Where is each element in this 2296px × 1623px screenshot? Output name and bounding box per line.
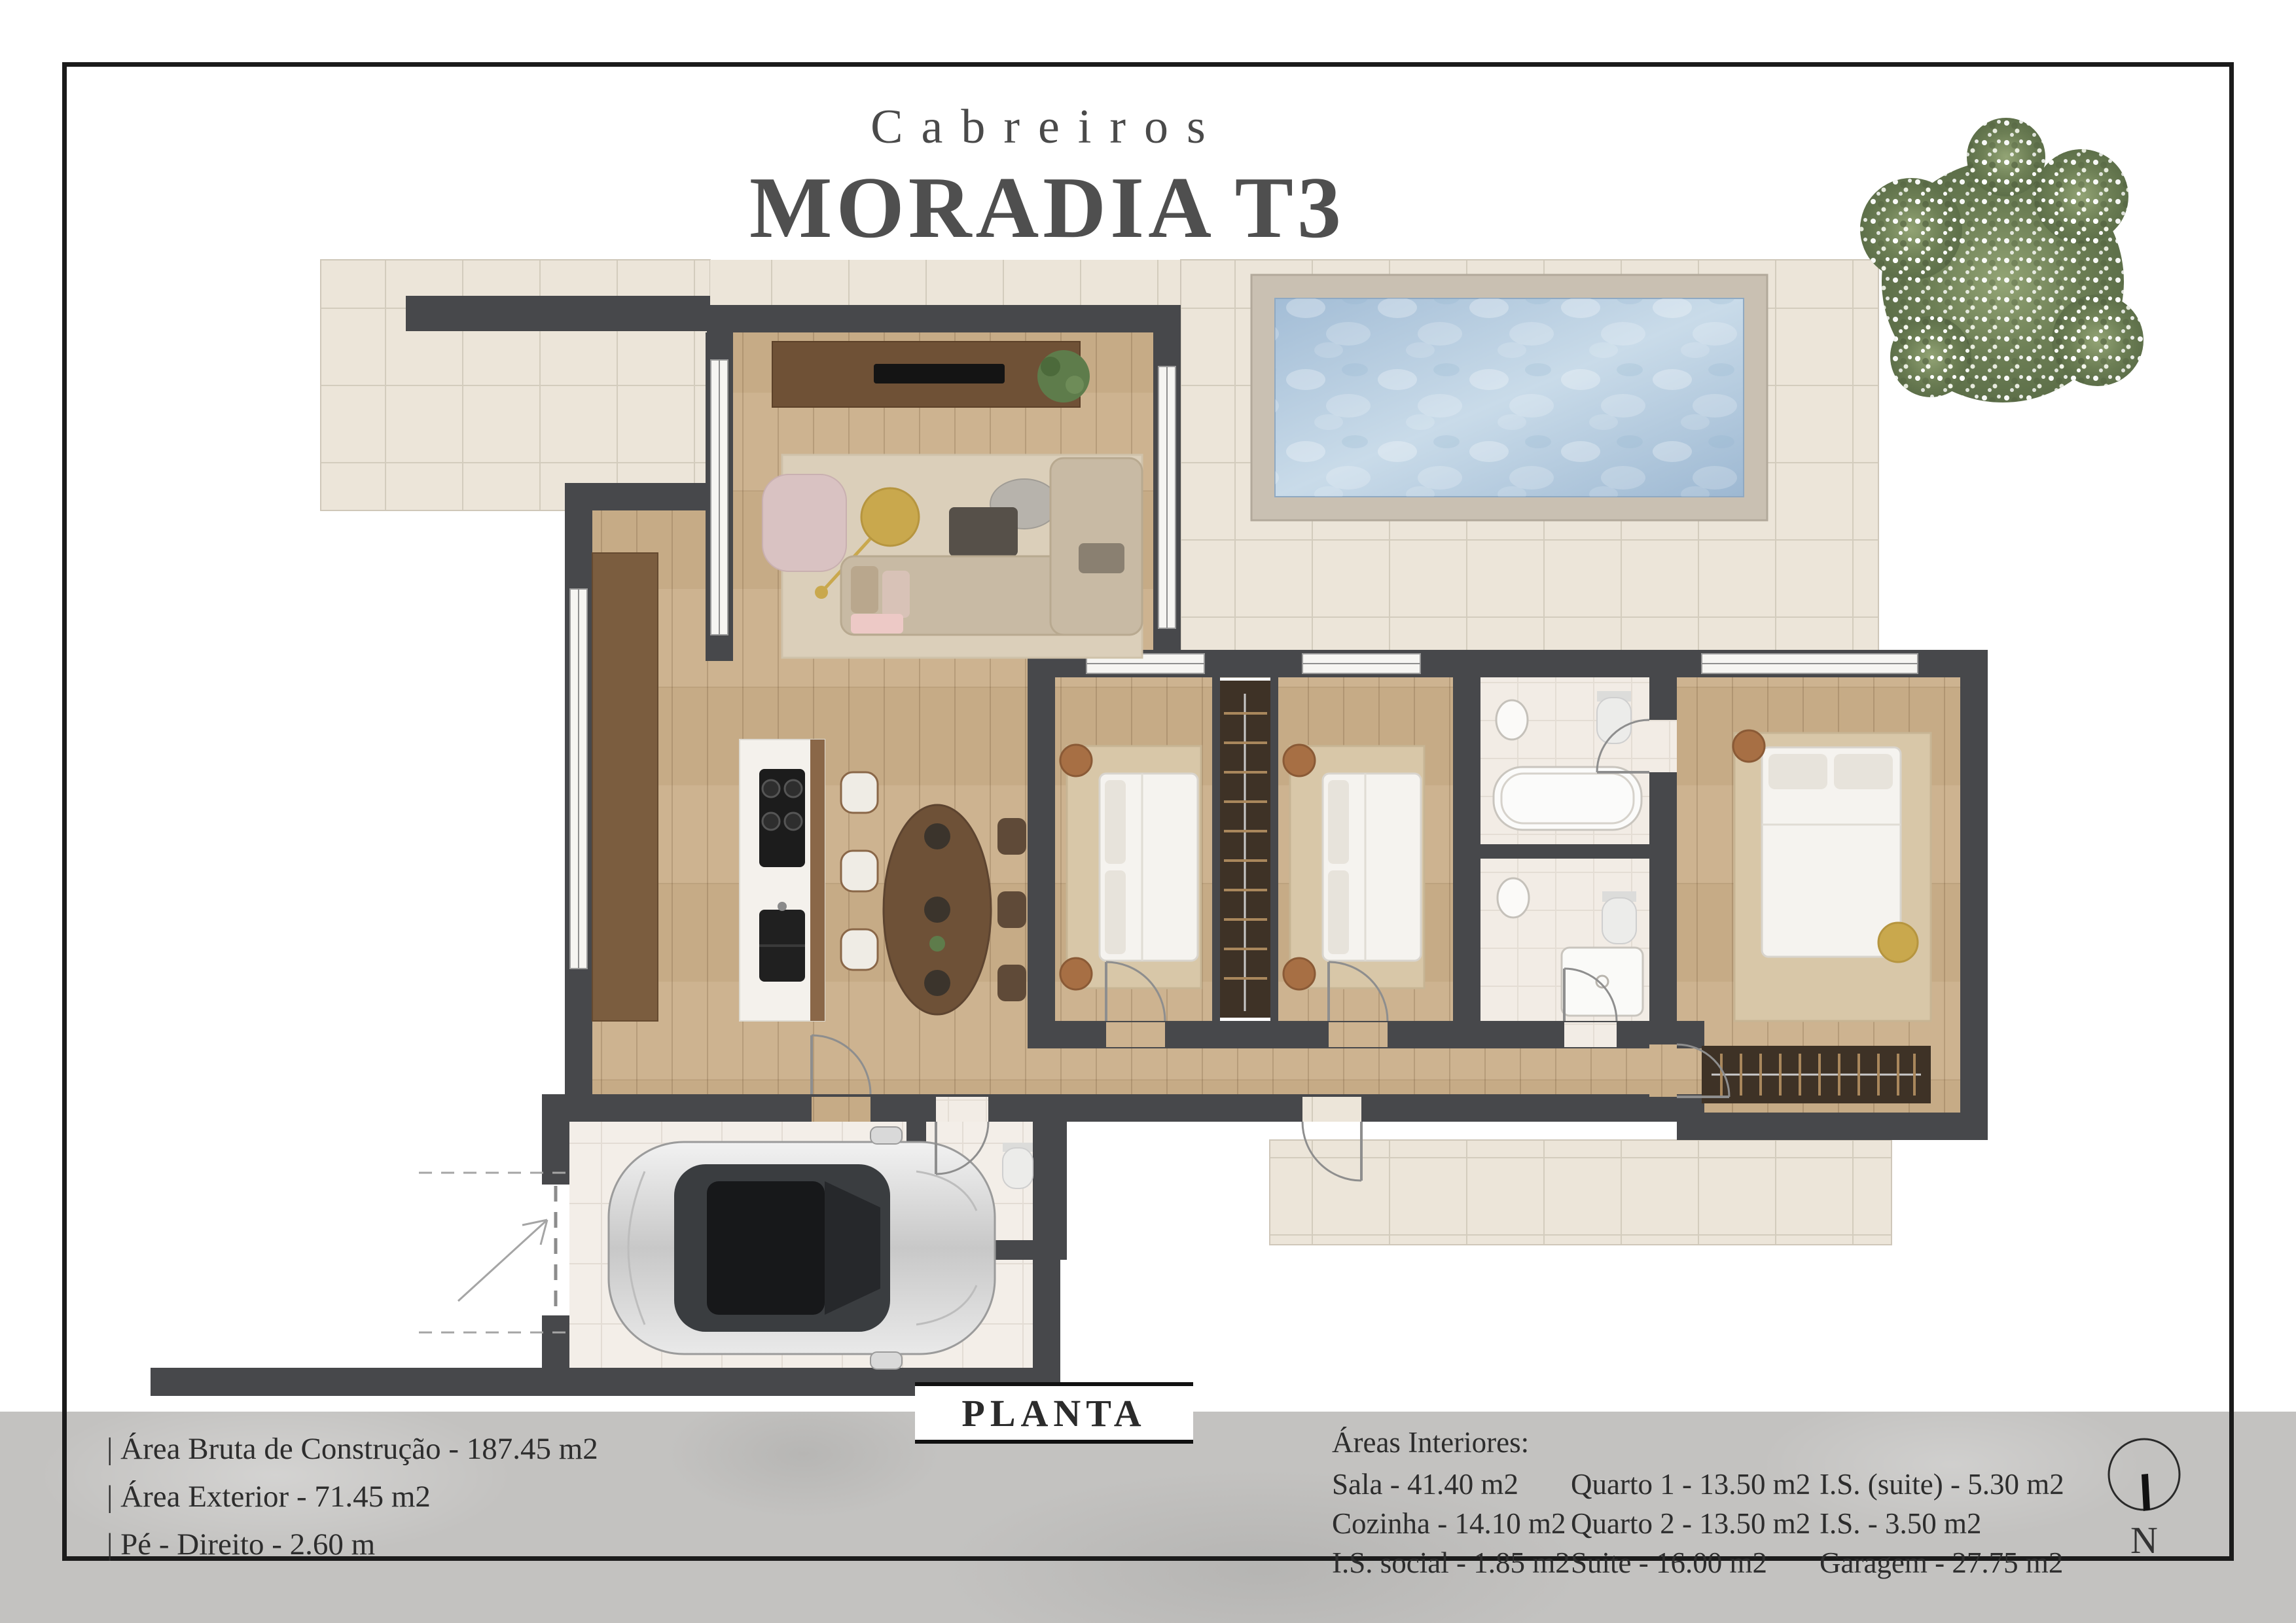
areas-column-2: Quarto 1 - 13.50 m2 Quarto 2 - 13.50 m2 … <box>1571 1465 1810 1582</box>
plan-label: PLANTA <box>915 1382 1193 1444</box>
compass-icon <box>2092 1431 2197 1519</box>
spec-line: | Área Exterior - 71.45 m2 <box>107 1473 598 1521</box>
project-name: Cabreiros <box>0 99 2094 155</box>
area-item: Quarto 1 - 13.50 m2 <box>1571 1465 1810 1504</box>
page-title: MORADIA T3 <box>0 157 2094 258</box>
area-item: Garagem - 27.75 m2 <box>1820 1543 2064 1582</box>
compass-north-label: N <box>2092 1518 2197 1562</box>
area-item: Cozinha - 14.10 m2 <box>1332 1504 1570 1543</box>
areas-column-3: I.S. (suite) - 5.30 m2 I.S. - 3.50 m2 Ga… <box>1820 1465 2064 1582</box>
areas-heading: Áreas Interiores: <box>1332 1425 1529 1459</box>
area-item: Suite - 16.00 m2 <box>1571 1543 1810 1582</box>
areas-column-1: Sala - 41.40 m2 Cozinha - 14.10 m2 I.S. … <box>1332 1465 1570 1582</box>
spec-line: | Pé - Direito - 2.60 m <box>107 1521 598 1569</box>
area-item: Sala - 41.40 m2 <box>1332 1465 1570 1504</box>
area-item: I.S. - 3.50 m2 <box>1820 1504 2064 1543</box>
area-item: Quarto 2 - 13.50 m2 <box>1571 1504 1810 1543</box>
area-item: I.S. (suite) - 5.30 m2 <box>1820 1465 2064 1504</box>
north-compass: N <box>2092 1431 2197 1559</box>
area-item: I.S. social - 1.85 m2 <box>1332 1543 1570 1582</box>
construction-specs: | Área Bruta de Construção - 187.45 m2 |… <box>107 1425 598 1569</box>
floor-plan-page: Cabreiros MORADIA T3 PLANTA | Área Bruta… <box>0 0 2296 1623</box>
spec-line: | Área Bruta de Construção - 187.45 m2 <box>107 1425 598 1473</box>
page-border <box>62 62 2234 1561</box>
